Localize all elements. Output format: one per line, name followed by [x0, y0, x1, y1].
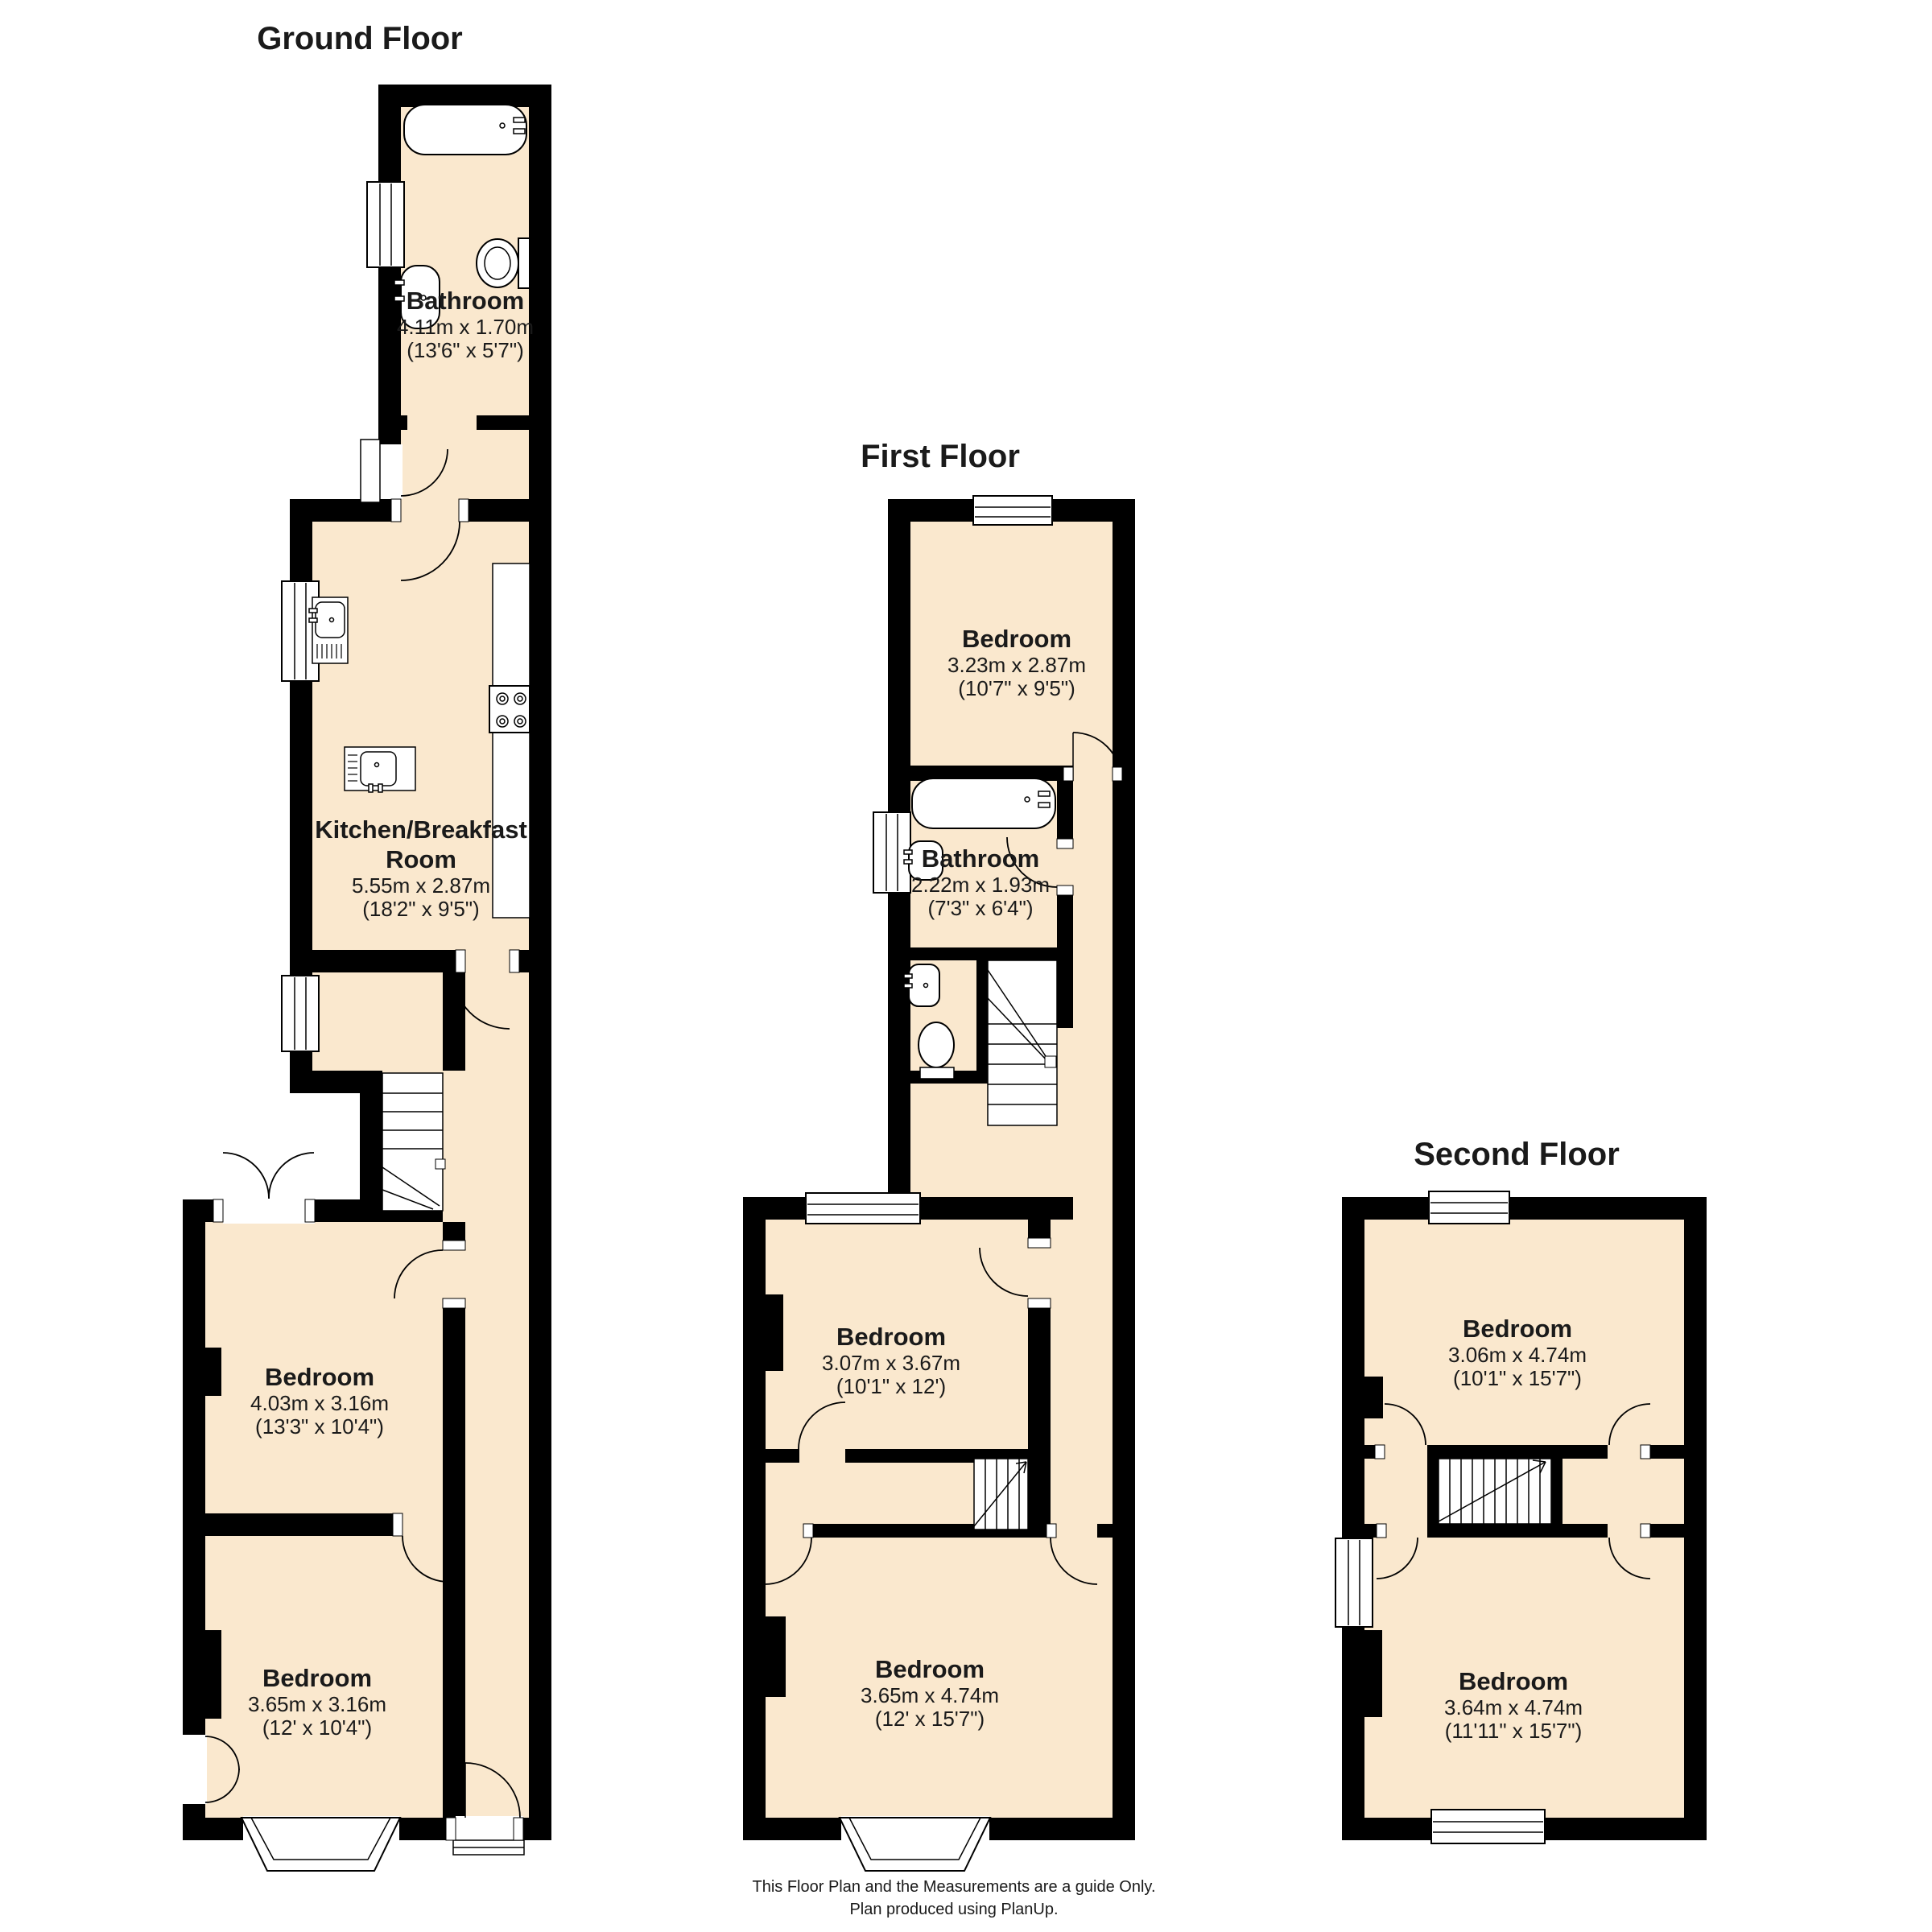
- room-name: Bedroom: [1448, 1314, 1587, 1344]
- room-metric: 4.03m x 3.16m: [250, 1392, 389, 1415]
- stairs-icon: [988, 960, 1057, 1125]
- room-metric: 3.64m x 4.74m: [1444, 1696, 1583, 1719]
- porch-step: [453, 1840, 524, 1855]
- chimney-breast: [1364, 1377, 1383, 1418]
- room-imperial: (11'11" x 15'7"): [1444, 1719, 1583, 1743]
- disclaimer: This Floor Plan and the Measurements are…: [753, 1876, 1156, 1921]
- room-metric: 4.11m x 1.70m: [397, 316, 534, 339]
- room-name: Bedroom: [947, 624, 1086, 654]
- room-label-bathroom-ground: Bathroom 4.11m x 1.70m (13'6" x 5'7"): [397, 286, 534, 362]
- room-name: Bedroom: [250, 1362, 389, 1392]
- room-imperial: (18'2" x 9'5"): [300, 898, 542, 921]
- french-door-arc: [223, 1153, 269, 1199]
- room-name: Bedroom: [1444, 1666, 1583, 1696]
- room-name: Bedroom: [248, 1663, 386, 1693]
- window: [367, 182, 404, 267]
- kitchen-sink-icon: [345, 747, 415, 792]
- toilet-icon: [477, 238, 530, 288]
- sink-icon: [904, 964, 939, 1006]
- bath-icon: [912, 778, 1055, 828]
- stairs-icon: [974, 1459, 1028, 1529]
- room-label-bedroom-ground-2: Bedroom 3.65m x 3.16m (12' x 10'4"): [248, 1663, 386, 1740]
- room-imperial: (12' x 10'4"): [248, 1716, 386, 1740]
- room-label-bedroom-second-front: Bedroom 3.64m x 4.74m (11'11" x 15'7"): [1444, 1666, 1583, 1743]
- room-name: Bedroom: [861, 1654, 999, 1684]
- kitchen-sink-icon: [309, 597, 348, 663]
- chimney-breast: [205, 1348, 221, 1396]
- disclaimer-line1: This Floor Plan and the Measurements are…: [753, 1876, 1156, 1898]
- room-name: Kitchen/Breakfast Room: [300, 815, 542, 874]
- room-label-bedroom-first-middle: Bedroom 3.07m x 3.67m (10'1" x 12'): [822, 1322, 960, 1398]
- floorplan-page: Ground Floor First Floor Second Floor Ba…: [0, 0, 1932, 1932]
- room-imperial: (10'1" x 15'7"): [1448, 1367, 1587, 1390]
- chimney-breast: [1364, 1630, 1382, 1717]
- stove-icon: [489, 686, 530, 733]
- bay-window: [840, 1818, 990, 1871]
- stairs-icon: [1439, 1459, 1551, 1524]
- floorplan-drawing: [0, 0, 1932, 1932]
- toilet-icon: [919, 1022, 954, 1079]
- second-fixtures: [1439, 1459, 1551, 1524]
- stairs-icon: [382, 1073, 445, 1211]
- window: [1429, 1191, 1509, 1224]
- floor-title-first: First Floor: [861, 439, 1020, 475]
- room-imperial: (12' x 15'7"): [861, 1707, 999, 1731]
- room-imperial: (13'6" x 5'7"): [397, 339, 534, 362]
- room-name: Bedroom: [822, 1322, 960, 1352]
- disclaimer-line2: Plan produced using PlanUp.: [753, 1898, 1156, 1921]
- room-metric: 2.22m x 1.93m: [911, 873, 1050, 897]
- window: [973, 496, 1052, 525]
- bay-window: [242, 1818, 400, 1871]
- chimney-breast: [766, 1294, 783, 1371]
- first-outer-walls: [754, 510, 1124, 1829]
- room-metric: 3.07m x 3.67m: [822, 1352, 960, 1375]
- room-imperial: (13'3" x 10'4"): [250, 1415, 389, 1439]
- room-metric: 5.55m x 2.87m: [300, 874, 542, 898]
- room-imperial: (10'1" x 12'): [822, 1375, 960, 1398]
- window: [1335, 1538, 1373, 1627]
- room-label-bedroom-first-rear: Bedroom 3.23m x 2.87m (10'7" x 9'5"): [947, 624, 1086, 700]
- room-label-bedroom-ground-1: Bedroom 4.03m x 3.16m (13'3" x 10'4"): [250, 1362, 389, 1439]
- bath-icon: [404, 105, 526, 155]
- room-metric: 3.65m x 3.16m: [248, 1693, 386, 1716]
- second-floor-plan: [1335, 1191, 1695, 1843]
- floor-title-ground: Ground Floor: [257, 21, 463, 57]
- window: [806, 1193, 920, 1224]
- room-label-bedroom-first-front: Bedroom 3.65m x 4.74m (12' x 15'7"): [861, 1654, 999, 1731]
- room-name: Bathroom: [397, 286, 534, 316]
- chimney-breast: [205, 1630, 221, 1719]
- floor-title-second: Second Floor: [1414, 1137, 1620, 1173]
- room-metric: 3.23m x 2.87m: [947, 654, 1086, 677]
- entrance-door-icon: [361, 440, 380, 502]
- room-name: Bathroom: [911, 844, 1050, 873]
- chimney-breast: [766, 1616, 786, 1697]
- room-metric: 3.65m x 4.74m: [861, 1684, 999, 1707]
- room-label-kitchen: Kitchen/Breakfast Room 5.55m x 2.87m (18…: [300, 815, 542, 921]
- room-metric: 3.06m x 4.74m: [1448, 1344, 1587, 1367]
- room-imperial: (7'3" x 6'4"): [911, 897, 1050, 920]
- window: [282, 976, 319, 1051]
- french-door-arc: [269, 1153, 314, 1199]
- room-label-bathroom-first: Bathroom 2.22m x 1.93m (7'3" x 6'4"): [911, 844, 1050, 920]
- room-label-bedroom-second-rear: Bedroom 3.06m x 4.74m (10'1" x 15'7"): [1448, 1314, 1587, 1390]
- window: [1431, 1810, 1545, 1843]
- room-imperial: (10'7" x 9'5"): [947, 677, 1086, 700]
